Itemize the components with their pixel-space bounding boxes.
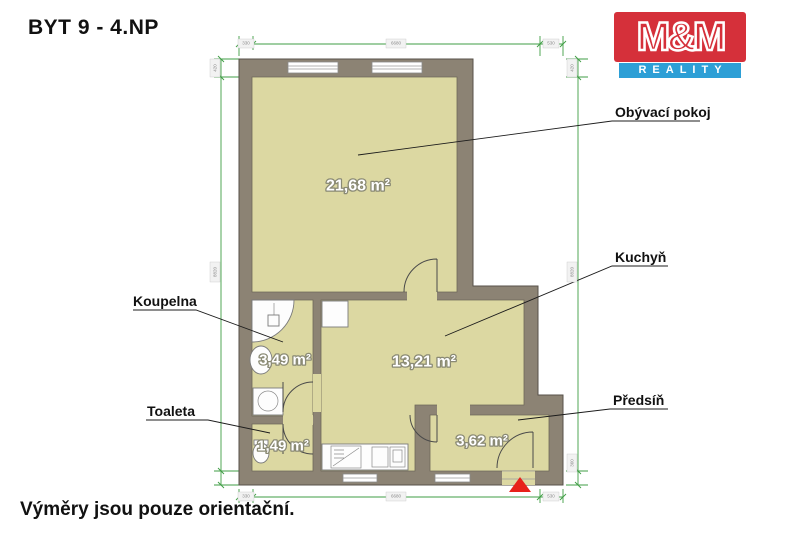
area-kitchen: 13,21 m² [392, 354, 456, 371]
disclaimer-note: Výměry jsou pouze orientační. [20, 499, 295, 521]
door-opening [437, 404, 470, 416]
dim-label: 6680 [391, 41, 402, 46]
floor-plan: 21,68 m² 13,21 m² 3,49 m² 1,49 m² 3,62 m… [0, 0, 800, 533]
label-koupelna: Koupelna [133, 293, 197, 309]
label-predsin: Předsíň [613, 392, 664, 408]
dim-label: 420 [213, 64, 218, 72]
agency-logo: M&M REALITY [614, 12, 746, 78]
dim-label: 420 [570, 64, 575, 72]
logo-reality-text: REALITY [619, 63, 741, 78]
window [288, 62, 338, 73]
shower-head-icon [268, 315, 279, 326]
area-toilet: 1,49 m² [257, 438, 309, 455]
door-opening [313, 374, 321, 412]
floorplan-page: 21,68 m² 13,21 m² 3,49 m² 1,49 m² 3,62 m… [0, 0, 800, 533]
area-bathroom: 3,49 m² [259, 352, 311, 369]
dim-label: 6680 [391, 494, 402, 499]
label-obyvaci-pokoj: Obývací pokoj [615, 104, 711, 120]
label-toaleta: Toaleta [147, 403, 195, 419]
dim-label: 530 [547, 494, 555, 499]
dim-label: 8820 [570, 266, 575, 277]
dim-label: 530 [547, 41, 555, 46]
dim-label: 8820 [213, 266, 218, 277]
door-opening [407, 291, 437, 301]
logo-mm-text: M&M [637, 15, 724, 60]
logo-mm-mark: M&M [614, 12, 746, 62]
door-opening [283, 415, 313, 425]
label-kuchyn: Kuchyň [615, 249, 666, 265]
area-hall: 3,62 m² [456, 433, 508, 450]
kitchen-counter [322, 444, 408, 470]
page-title: BYT 9 - 4.NP [28, 16, 159, 40]
dim-label: 330 [242, 494, 250, 499]
fridge-icon [322, 301, 348, 327]
dim-label: 360 [570, 459, 575, 467]
area-living: 21,68 m² [326, 178, 390, 195]
window [372, 62, 422, 73]
room-floors [252, 77, 549, 485]
dim-label: 330 [242, 41, 250, 46]
